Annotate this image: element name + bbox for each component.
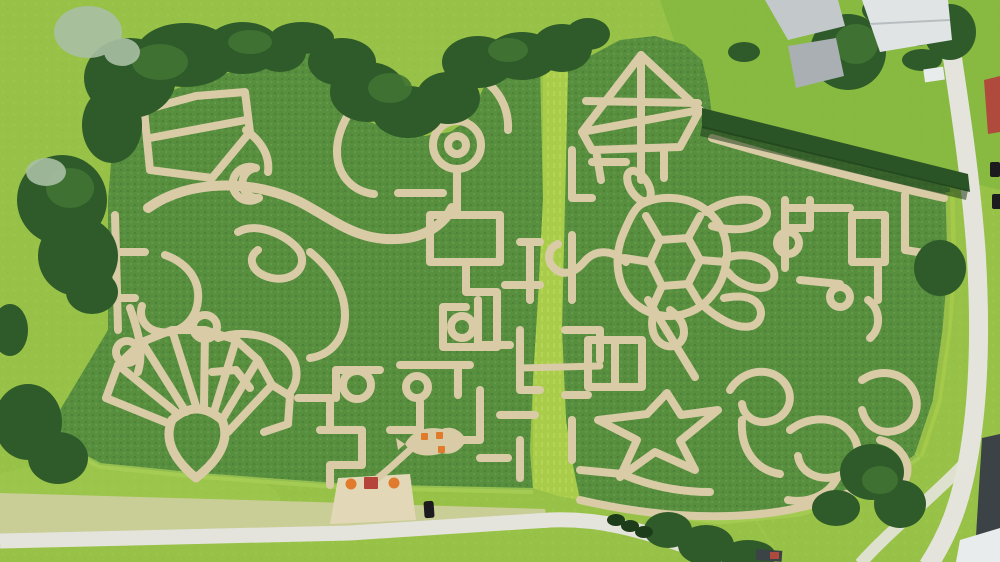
roadside-car-2	[992, 194, 1000, 209]
white-tarp	[923, 67, 945, 83]
parked-car[interactable]	[423, 501, 434, 519]
umbrella-left	[346, 479, 357, 490]
red-kiosk[interactable]	[364, 477, 378, 489]
scene-canvas	[0, 0, 1000, 562]
shed-red-roof	[770, 552, 779, 559]
umbrella-right	[389, 478, 400, 489]
aerial-photo	[0, 0, 1000, 562]
roadside-car-1	[990, 162, 1000, 177]
